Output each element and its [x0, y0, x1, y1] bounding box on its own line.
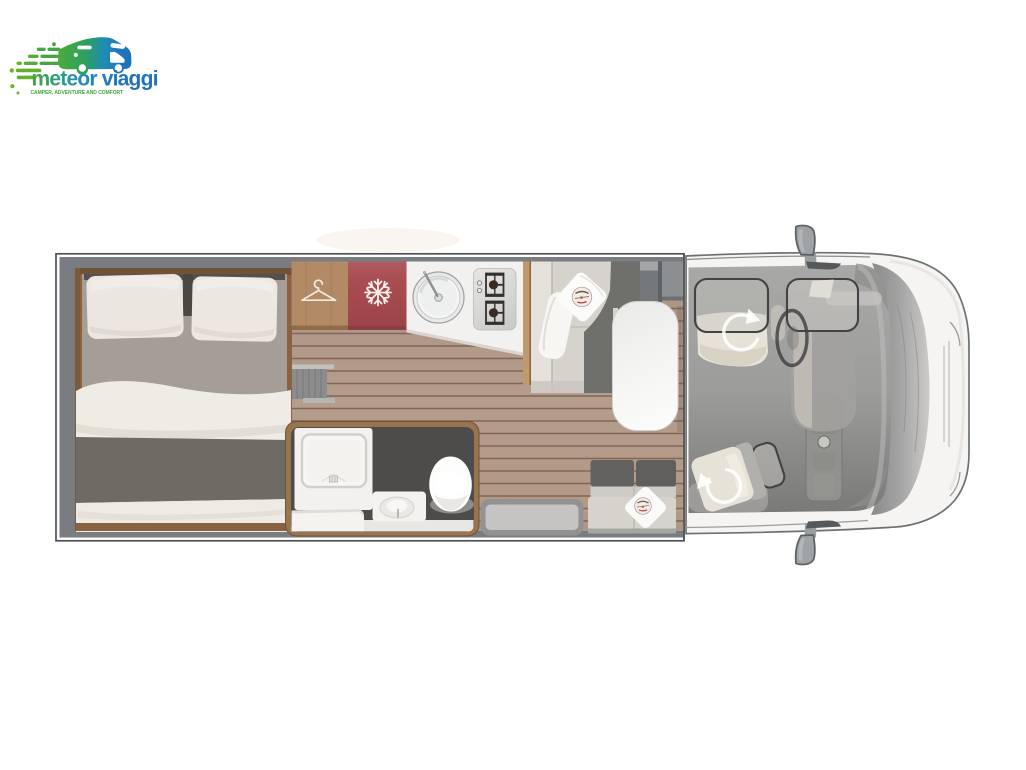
svg-text:CAMPER, ADVENTURE AND COMFORT: CAMPER, ADVENTURE AND COMFORT [31, 90, 124, 96]
svg-text:meteor viaggi: meteor viaggi [32, 68, 158, 91]
